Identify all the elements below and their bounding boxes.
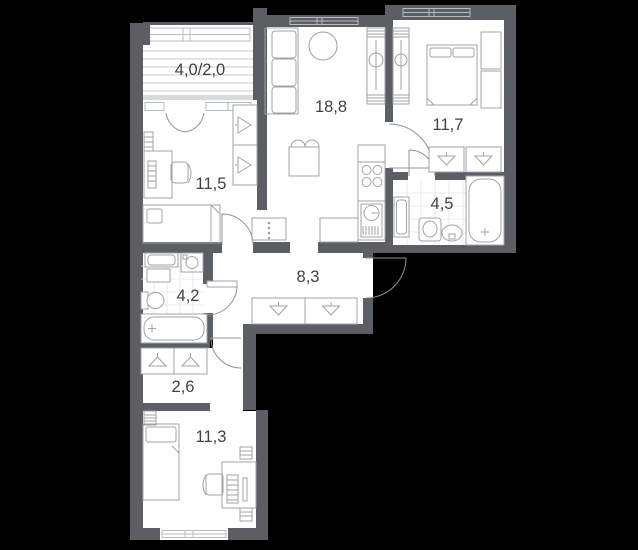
wall-balcony-top-line xyxy=(143,22,253,25)
door-gap-room-11-3 xyxy=(210,403,243,411)
wall-corridor-right xyxy=(243,334,256,410)
toilet-icon xyxy=(141,292,164,309)
corridor-area-label: 2,6 xyxy=(172,378,195,396)
wall-mid-b xyxy=(253,242,290,253)
washing-machine-icon xyxy=(181,253,203,272)
passage-living-hallway xyxy=(290,242,318,253)
desk-icon xyxy=(222,462,256,508)
bathtub-icon xyxy=(141,314,207,343)
entrance-door-gap xyxy=(363,258,373,298)
wall-left-outer xyxy=(130,23,143,540)
sink-icon xyxy=(419,218,441,241)
balcony-floor xyxy=(143,25,253,95)
washing-machine-icon xyxy=(394,197,409,237)
wall-entrance-bottom xyxy=(363,298,373,324)
hallway-area-label: 8,3 xyxy=(297,268,320,286)
living-kitchen-area-label: 18,8 xyxy=(315,98,347,116)
wardrobe-icon xyxy=(252,298,357,324)
wall-room115-living xyxy=(257,100,267,210)
wall-balcony-corner xyxy=(130,23,150,45)
wall-bedroom-bath-a xyxy=(393,172,408,180)
tall-cabinet-right-icon xyxy=(393,28,409,104)
balcony-sill xyxy=(143,95,253,100)
wall-mid-a xyxy=(130,242,222,253)
balcony-area-label: 4,0/2,0 xyxy=(175,61,225,79)
room-11-3-area-label: 11,3 xyxy=(196,428,227,446)
wall-hallway-bottom xyxy=(243,324,373,334)
wall-living-bedroom xyxy=(385,15,393,122)
bedroom-area-label: 11,7 xyxy=(433,116,464,134)
wall-right-outer xyxy=(504,5,516,253)
wall-room113-bottom-a xyxy=(130,528,160,540)
room-11-5-area-label: 11,5 xyxy=(196,175,227,193)
floor-plan-svg: 4,0/2,0 11,5 18,8 11,7 4,5 8,3 4,2 2,6 1… xyxy=(0,0,638,550)
wall-living-bath-main xyxy=(385,168,393,245)
wall-room113-right xyxy=(256,410,268,540)
wardrobe-icon xyxy=(233,105,257,185)
bathtub-icon xyxy=(466,176,504,245)
wall-entrance-top xyxy=(363,253,373,258)
wall-room113-bottom-b xyxy=(228,528,268,540)
floor-plan-canvas: 4,0/2,0 11,5 18,8 11,7 4,5 8,3 4,2 2,6 1… xyxy=(0,0,638,550)
door-gap-bedroom xyxy=(385,122,393,168)
wall-block-bottom xyxy=(363,245,516,253)
tall-cabinet-left-icon xyxy=(367,28,385,104)
door-gap-bathroom-main xyxy=(408,172,435,180)
wardrobe-icon xyxy=(141,348,207,374)
toilet-icon xyxy=(442,225,462,241)
door-gap-room-11-5 xyxy=(222,242,253,253)
wall-corridor-bottom xyxy=(130,403,210,411)
bathroom-main-area-label: 4,5 xyxy=(431,195,454,213)
hallway-furniture xyxy=(252,298,357,324)
bathroom-small-area-label: 4,2 xyxy=(177,287,200,305)
door-gap-bathroom-small xyxy=(203,284,213,313)
living-floor-pocket xyxy=(257,210,269,242)
wall-bath-small-right-a xyxy=(203,253,213,284)
corridor-furniture xyxy=(141,348,207,374)
